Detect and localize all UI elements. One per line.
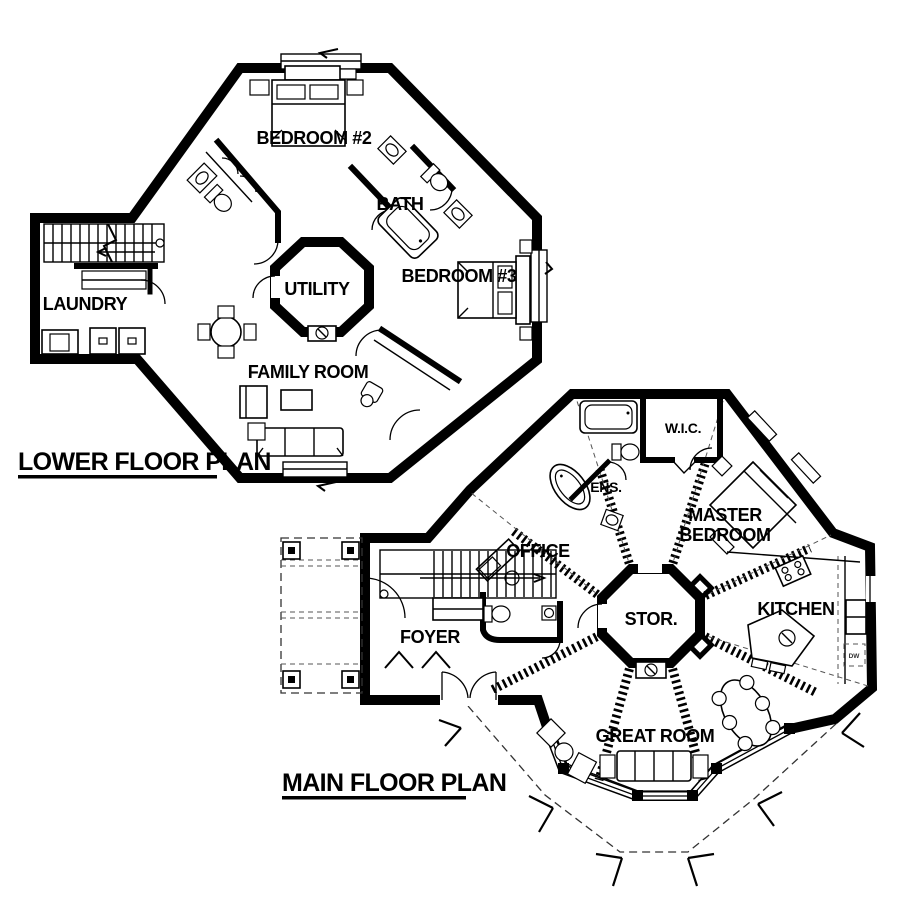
label-storage: STOR.: [625, 609, 678, 629]
chair: [218, 346, 234, 358]
label-family-room: FAMILY ROOM: [248, 362, 369, 382]
sink: [542, 606, 556, 620]
label-laundry: LAUNDRY: [43, 294, 128, 314]
toilet: [612, 444, 639, 460]
label-master-line1: MASTER: [688, 505, 762, 525]
label-kitchen: KITCHEN: [757, 599, 834, 619]
end-table: [693, 755, 708, 778]
window-bay-right: [531, 250, 547, 322]
table: [211, 317, 241, 347]
label-foyer: FOYER: [400, 627, 460, 647]
nightstand: [520, 240, 532, 253]
dishwasher-label: DW: [849, 653, 861, 660]
headboard: [285, 66, 340, 80]
porch-columns: [283, 542, 359, 688]
floor-plan-drawing: DW: [0, 0, 900, 900]
lower-title-underline: [18, 475, 217, 479]
south-tick: [318, 482, 336, 491]
chair: [198, 324, 210, 340]
label-bedroom-3: BEDROOM #3: [401, 266, 516, 286]
label-bedroom-2: BEDROOM #2: [256, 128, 371, 148]
label-ensuite: ENS.: [590, 479, 621, 495]
chair: [218, 306, 234, 318]
toilet: [484, 606, 510, 622]
pillow: [498, 292, 512, 314]
pillow: [310, 85, 338, 99]
pillow: [277, 85, 305, 99]
label-bath: BATH: [376, 194, 423, 214]
coffee-table: [281, 390, 312, 410]
label-utility: UTILITY: [284, 279, 350, 299]
nightstand: [347, 80, 363, 95]
nightstand: [520, 327, 532, 340]
laundry-sink: [50, 334, 69, 351]
chair: [244, 324, 256, 340]
armchair: [240, 386, 267, 418]
newel-post: [156, 239, 164, 247]
end-table: [248, 423, 265, 440]
front-porch: [281, 538, 362, 693]
main-title-underline: [282, 796, 466, 800]
label-great-room: GREAT ROOM: [596, 726, 715, 746]
window-bay-bottom: [283, 462, 347, 477]
headboard: [516, 256, 530, 324]
main-plan-title: MAIN FLOOR PLAN: [282, 769, 506, 797]
entry-door-gap: [440, 693, 498, 706]
end-table: [600, 755, 615, 778]
label-office: OFFICE: [506, 541, 570, 561]
storage-door-gap: [598, 604, 607, 628]
floor-plan-sheet: DW: [0, 0, 900, 900]
side-table: [555, 743, 573, 761]
label-wic: W.I.C.: [665, 420, 701, 436]
utility-door-gap: [271, 276, 280, 298]
label-master-line2: BEDROOM: [679, 525, 770, 545]
lower-plan-title: LOWER FLOOR PLAN: [18, 448, 271, 476]
nightstand: [250, 80, 269, 95]
